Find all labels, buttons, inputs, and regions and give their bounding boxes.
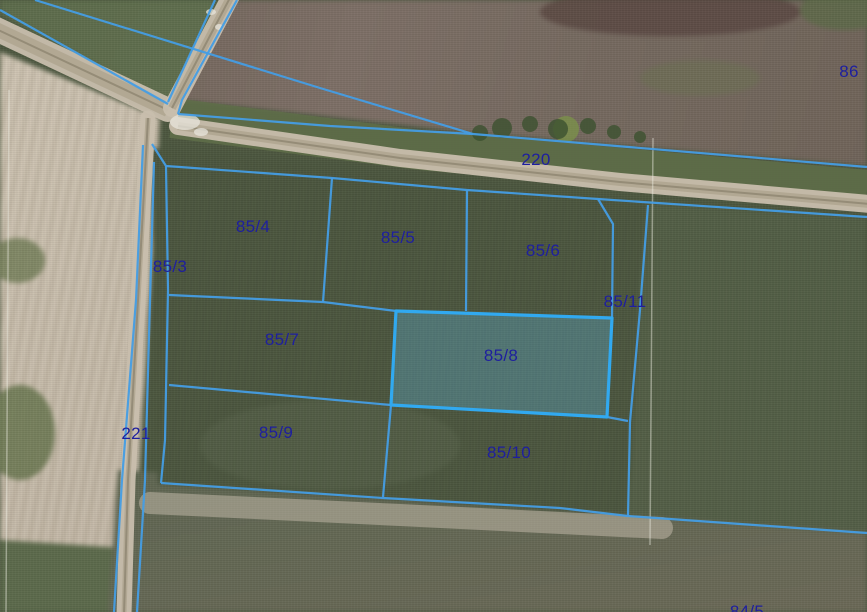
boundary-overlay: [0, 0, 867, 612]
white-line-left: [6, 90, 9, 612]
shrub-0: [472, 125, 488, 141]
shrub-4: [580, 118, 596, 134]
boundary-strip-85-11-east: [628, 205, 648, 516]
boundary-block-left-edge: [161, 166, 168, 483]
boundary-parcel-85-6-corner-cut: [598, 199, 613, 318]
selected-parcel-region[interactable]: [391, 311, 612, 417]
boundary-nw-road-north: [0, 10, 168, 104]
boundary-divider-row-2-3-west: [169, 385, 391, 405]
shrub-3: [548, 119, 568, 139]
shrub-6: [634, 131, 646, 143]
boundary-strip-85-11-south: [607, 417, 628, 421]
map-canvas[interactable]: 8622085/485/585/685/385/1185/785/822185/…: [0, 0, 867, 612]
shrub-2: [522, 116, 538, 132]
boundary-divider-85-5-85-6: [466, 190, 467, 311]
bottom-track: [150, 503, 662, 528]
boundary-divider-85-9-85-10: [383, 405, 391, 497]
bare-patch-1: [194, 128, 208, 136]
boundary-divider-85-4-85-7: [169, 295, 396, 311]
shrub-5: [607, 125, 621, 139]
white-line-right: [650, 138, 653, 545]
boundary-divider-85-4-85-5: [323, 178, 332, 302]
